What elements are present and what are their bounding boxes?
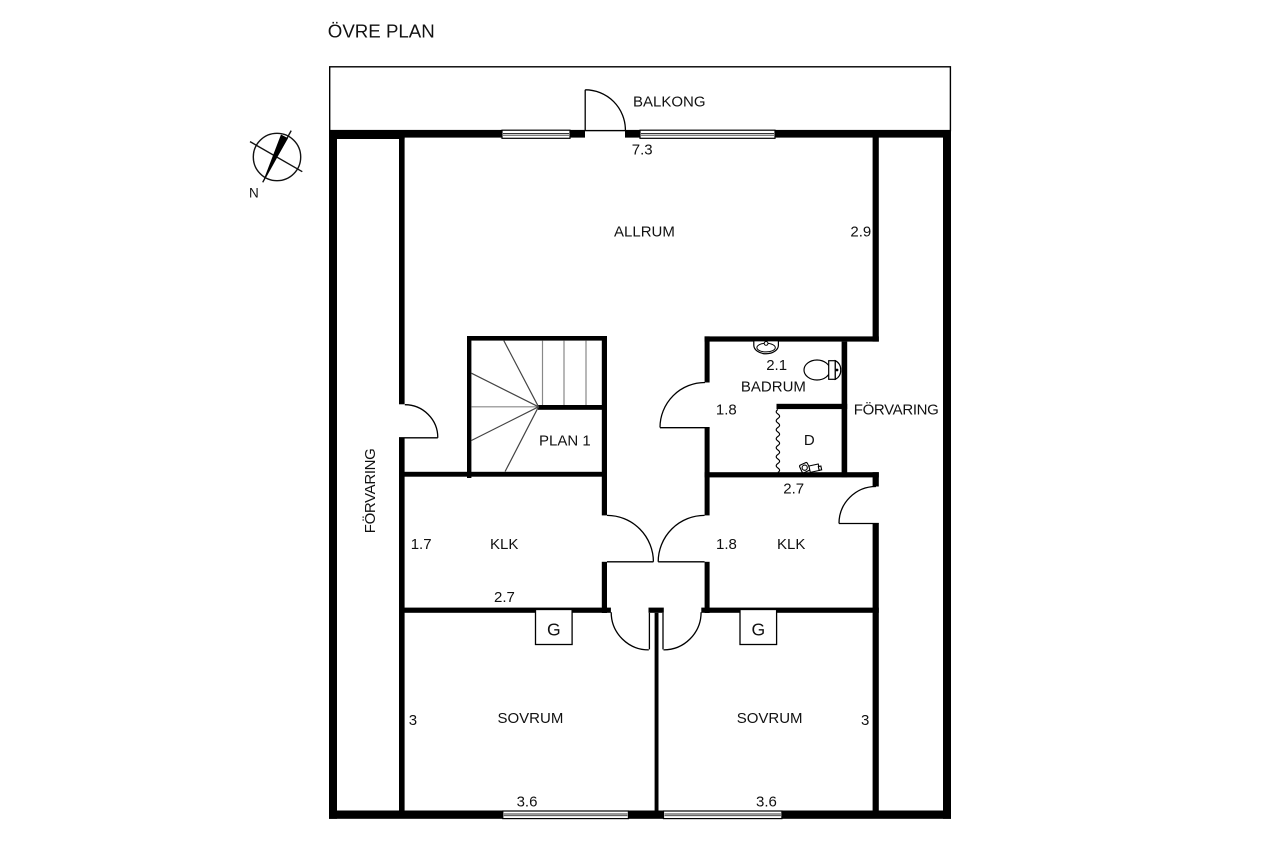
svg-text:BADRUM: BADRUM [741,378,806,395]
svg-text:G: G [547,619,561,639]
svg-text:3: 3 [409,712,417,729]
svg-text:FÖRVARING: FÖRVARING [361,449,379,534]
svg-text:7.3: 7.3 [632,142,653,159]
svg-text:2.7: 2.7 [783,481,804,498]
svg-text:3.6: 3.6 [517,794,538,811]
svg-text:2.9: 2.9 [850,223,871,240]
svg-text:2.1: 2.1 [766,357,787,374]
svg-text:1.8: 1.8 [716,402,737,419]
svg-text:BALKONG: BALKONG [633,93,706,110]
svg-text:SOVRUM: SOVRUM [498,710,564,727]
svg-text:SOVRUM: SOVRUM [737,710,803,727]
svg-text:ALLRUM: ALLRUM [614,223,675,240]
svg-text:FÖRVARING: FÖRVARING [854,401,939,419]
svg-text:1.7: 1.7 [411,536,432,553]
svg-text:N: N [249,185,259,200]
svg-text:3: 3 [861,712,869,729]
svg-text:3.6: 3.6 [756,794,777,811]
svg-text:D: D [804,432,815,449]
svg-text:PLAN 1: PLAN 1 [539,433,591,450]
svg-text:KLK: KLK [777,536,805,553]
svg-text:2.7: 2.7 [494,589,515,606]
svg-text:G: G [751,619,765,639]
svg-text:1.8: 1.8 [716,536,737,553]
svg-text:KLK: KLK [490,536,518,553]
svg-text:ÖVRE PLAN: ÖVRE PLAN [328,21,435,42]
